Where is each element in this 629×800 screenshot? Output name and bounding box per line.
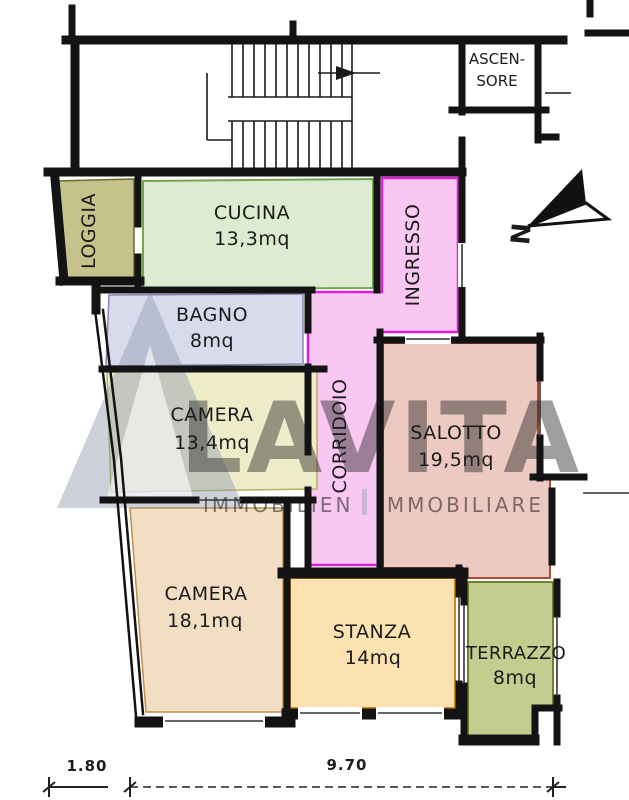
- dim-label-left: 1.80: [66, 757, 107, 775]
- label-bagno: BAGNO: [176, 304, 248, 326]
- room-stanza: [290, 578, 455, 708]
- label-cucina-area: 13,3mq: [214, 228, 290, 250]
- stair-treads-upper: [232, 44, 342, 97]
- stair-treads-lower: [232, 121, 342, 168]
- label-camera1: CAMERA: [170, 404, 253, 426]
- stair-direction-arrowhead: [336, 66, 356, 80]
- label-camera2: CAMERA: [164, 583, 247, 605]
- stair-stringer: [207, 73, 232, 140]
- label-stanza-area: 14mq: [345, 647, 402, 669]
- label-ascensore-1: ASCEN-: [469, 50, 525, 68]
- label-bagno-area: 8mq: [190, 330, 234, 352]
- label-stanza: STANZA: [333, 621, 411, 643]
- label-terrazzo: TERRAZZO: [465, 643, 566, 664]
- floor-plan-svg: LAVITA IMMOBILIEN IMMOBILIARE: [0, 0, 629, 800]
- stair-landing: [228, 44, 352, 168]
- label-loggia: LOGGIA: [78, 193, 100, 269]
- label-ascensore-2: SORE: [476, 72, 517, 90]
- watermark-divider: [362, 489, 367, 515]
- watermark-sub-right: IMMOBILIARE: [378, 493, 544, 517]
- label-ingresso: INGRESSO: [402, 204, 424, 307]
- compass: N: [503, 169, 608, 246]
- dimension-line: 1.80 9.70: [43, 756, 566, 797]
- label-corridoio: CORRIDOIO: [329, 379, 351, 494]
- label-cucina: CUCINA: [214, 202, 290, 224]
- north-label: N: [503, 222, 535, 246]
- label-salotto: SALOTTO: [410, 422, 502, 444]
- dim-label-main: 9.70: [326, 756, 367, 774]
- label-camera1-area: 13,4mq: [174, 432, 250, 454]
- label-terrazzo-area: 8mq: [493, 667, 537, 689]
- label-camera2-area: 18,1mq: [167, 610, 243, 632]
- label-salotto-area: 19,5mq: [418, 449, 494, 471]
